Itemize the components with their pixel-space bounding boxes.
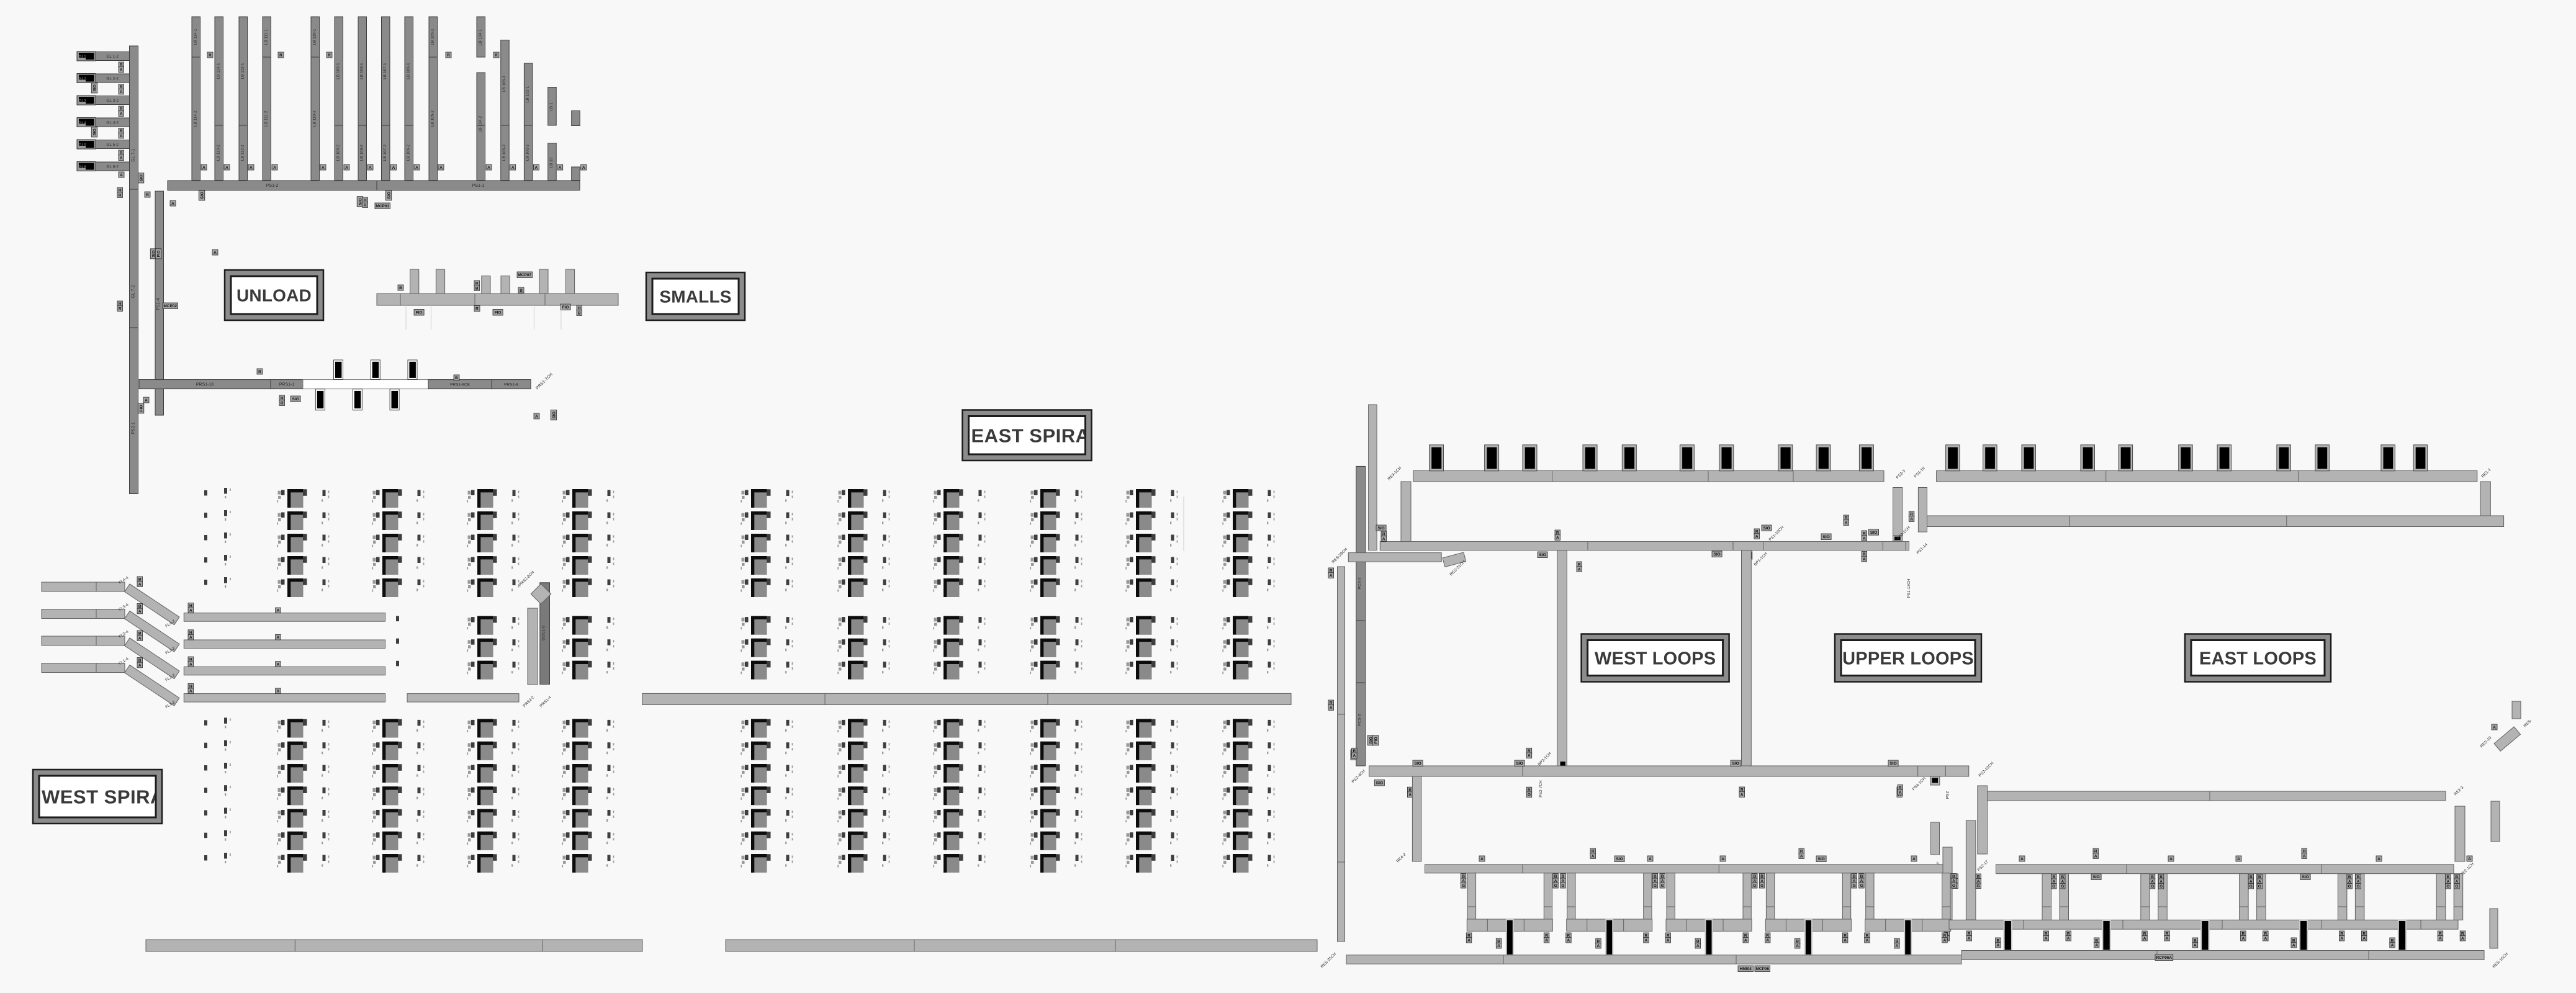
svg-text:SIO: SIO bbox=[1817, 857, 1824, 861]
svg-text:R: R bbox=[447, 53, 450, 58]
svg-text:A: A bbox=[138, 636, 142, 640]
svg-text:SIO: SIO bbox=[1889, 762, 1896, 766]
svg-text:A: A bbox=[2292, 943, 2295, 948]
svg-text:FIO: FIO bbox=[416, 311, 423, 315]
svg-text:A: A bbox=[1899, 791, 1902, 795]
svg-text:A: A bbox=[120, 156, 123, 160]
svg-text:GL6: GL6 bbox=[79, 165, 87, 169]
svg-text:PRS1-1: PRS1-1 bbox=[279, 383, 295, 387]
svg-text:FIO: FIO bbox=[562, 305, 569, 310]
svg-text:GL 3-2: GL 3-2 bbox=[106, 99, 119, 103]
svg-text:A: A bbox=[250, 166, 253, 170]
svg-text:A: A bbox=[1863, 536, 1866, 541]
svg-text:SIO: SIO bbox=[1822, 535, 1829, 539]
svg-text:SIO: SIO bbox=[139, 174, 143, 181]
svg-text:A: A bbox=[1968, 937, 1971, 941]
svg-text:G: G bbox=[2446, 884, 2449, 889]
svg-text:R: R bbox=[119, 307, 122, 311]
svg-text:LB 108-1: LB 108-1 bbox=[359, 63, 364, 79]
svg-text:G: G bbox=[1860, 884, 1863, 888]
svg-text:A: A bbox=[189, 636, 192, 640]
svg-text:GL2: GL2 bbox=[79, 77, 87, 81]
svg-text:LB 103-1: LB 103-1 bbox=[502, 75, 507, 92]
svg-text:SIO: SIO bbox=[1539, 553, 1546, 557]
svg-text:B: B bbox=[520, 289, 523, 293]
svg-text:A: A bbox=[2237, 857, 2240, 861]
svg-text:R: R bbox=[328, 53, 331, 58]
svg-text:R: R bbox=[258, 370, 261, 374]
svg-text:PRS1-9CB: PRS1-9CB bbox=[450, 382, 470, 387]
svg-text:A: A bbox=[1528, 754, 1531, 758]
svg-text:SIO: SIO bbox=[1870, 531, 1877, 535]
svg-text:A: A bbox=[214, 251, 217, 255]
svg-text:LB 1: LB 1 bbox=[549, 102, 554, 111]
svg-text:LB 104-1: LB 104-1 bbox=[478, 29, 482, 45]
svg-text:MCP02: MCP02 bbox=[163, 304, 177, 308]
svg-text:LB 113-2: LB 113-2 bbox=[216, 145, 220, 161]
svg-text:LB 111-1: LB 111-1 bbox=[264, 29, 268, 45]
svg-text:G: G bbox=[1661, 884, 1664, 888]
svg-text:G: G bbox=[2348, 884, 2351, 889]
svg-text:FIO: FIO bbox=[495, 311, 502, 315]
svg-text:GL 7-1: GL 7-1 bbox=[132, 148, 136, 161]
svg-text:A: A bbox=[1567, 938, 1570, 943]
svg-text:LB 109-1: LB 109-1 bbox=[336, 63, 340, 79]
svg-text:R: R bbox=[281, 401, 284, 405]
svg-text:R: R bbox=[279, 53, 282, 58]
svg-text:G: G bbox=[2455, 884, 2458, 889]
svg-text:A: A bbox=[2067, 937, 2070, 941]
svg-text:SIO: SIO bbox=[1516, 762, 1523, 766]
svg-text:SIO: SIO bbox=[552, 411, 556, 418]
svg-text:LB 109-2: LB 109-2 bbox=[336, 145, 340, 161]
svg-text:SIO: SIO bbox=[92, 128, 97, 135]
svg-text:LB 113-1: LB 113-1 bbox=[216, 63, 220, 79]
svg-text:A: A bbox=[2468, 857, 2471, 861]
svg-text:SIO: SIO bbox=[2302, 875, 2308, 879]
svg-text:A: A bbox=[2094, 854, 2097, 858]
svg-text:PS2: PS2 bbox=[1946, 791, 1950, 799]
svg-text:A: A bbox=[273, 166, 276, 170]
svg-text:GL5: GL5 bbox=[79, 143, 87, 148]
svg-text:A: A bbox=[1910, 517, 1913, 521]
svg-text:A: A bbox=[1497, 944, 1500, 948]
svg-text:A: A bbox=[1943, 938, 1947, 943]
svg-text:A: A bbox=[1721, 857, 1724, 861]
svg-text:A: A bbox=[2194, 943, 2197, 948]
svg-text:A: A bbox=[1741, 793, 1744, 797]
svg-text:A: A bbox=[1796, 944, 1799, 948]
svg-text:A: A bbox=[171, 202, 174, 206]
svg-text:A: A bbox=[120, 134, 123, 138]
svg-text:GL 6-2: GL 6-2 bbox=[106, 164, 119, 169]
svg-text:GL4: GL4 bbox=[79, 121, 87, 125]
svg-text:R: R bbox=[364, 203, 367, 207]
svg-text:A: A bbox=[2166, 937, 2169, 941]
svg-text:G: G bbox=[2249, 884, 2253, 889]
svg-text:A: A bbox=[138, 609, 142, 614]
svg-text:GL 5-2: GL 5-2 bbox=[106, 143, 119, 147]
svg-text:A: A bbox=[415, 166, 418, 170]
svg-text:LB 111-2: LB 111-2 bbox=[264, 110, 268, 127]
svg-text:G: G bbox=[2151, 884, 2154, 889]
svg-text:PS1-4: PS1-4 bbox=[156, 298, 161, 310]
svg-text:O: O bbox=[1528, 793, 1531, 798]
svg-text:LB 106-1: LB 106-1 bbox=[406, 63, 410, 79]
svg-text:A: A bbox=[1996, 943, 1999, 948]
svg-text:A: A bbox=[1330, 573, 1333, 578]
svg-text:A: A bbox=[277, 609, 280, 613]
svg-text:A: A bbox=[392, 166, 395, 170]
svg-text:A: A bbox=[582, 166, 585, 170]
svg-text:LB 107-2: LB 107-2 bbox=[383, 145, 387, 161]
svg-text:G: G bbox=[1977, 884, 1980, 889]
svg-text:G: G bbox=[1654, 884, 1657, 888]
svg-text:A: A bbox=[1844, 938, 1847, 943]
svg-text:A: A bbox=[189, 662, 192, 667]
svg-text:A: A bbox=[2264, 937, 2267, 941]
svg-text:G: G bbox=[2159, 884, 2163, 889]
svg-text:G: G bbox=[1554, 884, 1557, 888]
svg-text:B: B bbox=[399, 286, 402, 290]
svg-text:HMI04: HMI04 bbox=[1740, 967, 1752, 971]
svg-text:A: A bbox=[535, 415, 538, 419]
svg-text:GL 7-2: GL 7-2 bbox=[132, 285, 136, 298]
svg-text:A: A bbox=[138, 663, 142, 668]
svg-text:A: A bbox=[1645, 938, 1648, 943]
svg-text:SIO: SIO bbox=[358, 198, 363, 205]
svg-text:SMALLS: SMALLS bbox=[659, 287, 731, 307]
svg-text:MCP01: MCP01 bbox=[376, 204, 389, 209]
svg-text:A: A bbox=[2303, 854, 2306, 858]
svg-text:A: A bbox=[1578, 567, 1581, 572]
svg-text:A: A bbox=[1408, 793, 1412, 798]
svg-text:SIO: SIO bbox=[92, 84, 97, 91]
svg-text:A: A bbox=[2362, 937, 2366, 941]
svg-text:A: A bbox=[2340, 937, 2343, 941]
svg-text:G: G bbox=[2357, 884, 2360, 889]
svg-text:A: A bbox=[1866, 938, 1869, 943]
svg-text:SIO: SIO bbox=[1377, 526, 1384, 531]
svg-text:A: A bbox=[225, 166, 228, 170]
svg-text:A: A bbox=[1353, 754, 1356, 758]
svg-text:LB 110-1: LB 110-1 bbox=[312, 29, 317, 45]
svg-text:A: A bbox=[535, 166, 538, 170]
svg-text:A: A bbox=[277, 662, 280, 667]
svg-text:LB 112-1: LB 112-1 bbox=[240, 63, 245, 79]
svg-text:A: A bbox=[559, 166, 562, 170]
svg-text:SIO: SIO bbox=[2092, 875, 2099, 879]
svg-text:A: A bbox=[369, 166, 372, 170]
svg-text:A: A bbox=[2020, 857, 2024, 861]
svg-text:A: A bbox=[1667, 938, 1670, 943]
svg-text:G: G bbox=[1462, 884, 1465, 888]
svg-text:DOC1-5: DOC1-5 bbox=[542, 626, 546, 640]
svg-text:A: A bbox=[511, 166, 515, 170]
svg-text:MCP06: MCP06 bbox=[1755, 967, 1769, 971]
svg-text:A: A bbox=[1597, 944, 1600, 948]
svg-text:LB 110-2: LB 110-2 bbox=[312, 110, 317, 127]
svg-text:R: R bbox=[146, 193, 149, 197]
svg-text:SIO: SIO bbox=[1376, 781, 1383, 786]
svg-text:A: A bbox=[1592, 854, 1595, 858]
svg-text:LB 107-1: LB 107-1 bbox=[383, 63, 387, 79]
svg-text:GL 1-2: GL 1-2 bbox=[106, 55, 119, 59]
svg-text:PS1-2: PS1-2 bbox=[266, 184, 279, 188]
svg-text:LB 112-2: LB 112-2 bbox=[240, 145, 245, 161]
svg-text:A: A bbox=[2493, 726, 2496, 730]
svg-text:R: R bbox=[495, 53, 498, 58]
svg-text:A: A bbox=[1845, 521, 1848, 525]
svg-text:A: A bbox=[120, 90, 123, 94]
svg-text:LB 103-2: LB 103-2 bbox=[502, 144, 507, 161]
svg-text:A: A bbox=[439, 166, 443, 170]
svg-text:B: B bbox=[475, 286, 479, 290]
svg-text:A: A bbox=[1382, 537, 1385, 541]
svg-text:G: G bbox=[1853, 884, 1856, 888]
svg-text:MCP07: MCP07 bbox=[518, 273, 531, 277]
svg-text:LB 10: LB 10 bbox=[549, 157, 554, 168]
svg-text:UPPER LOOPS: UPPER LOOPS bbox=[1842, 649, 1974, 668]
svg-text:EAST SPIRAL: EAST SPIRAL bbox=[971, 425, 1102, 446]
svg-text:A: A bbox=[1480, 857, 1484, 861]
svg-text:FIO: FIO bbox=[1374, 737, 1378, 744]
svg-text:G: G bbox=[1753, 884, 1756, 888]
svg-text:LB 104-2: LB 104-2 bbox=[478, 115, 482, 132]
svg-text:PS1-13CH: PS1-13CH bbox=[1907, 578, 1911, 598]
svg-text:A: A bbox=[277, 690, 280, 694]
svg-text:SIO: SIO bbox=[387, 192, 391, 199]
svg-text:GL3: GL3 bbox=[79, 99, 87, 104]
svg-text:A: A bbox=[1556, 536, 1559, 540]
svg-text:PCS-2: PCS-2 bbox=[1358, 577, 1362, 590]
svg-text:A: A bbox=[120, 173, 123, 177]
svg-text:PRS1-18: PRS1-18 bbox=[196, 383, 214, 387]
svg-text:A: A bbox=[1467, 938, 1470, 943]
svg-text:A: A bbox=[1912, 857, 1916, 861]
svg-text:FIO: FIO bbox=[156, 250, 161, 257]
svg-text:B: B bbox=[455, 376, 458, 380]
svg-text:A: A bbox=[322, 166, 325, 170]
svg-text:A: A bbox=[1766, 938, 1769, 943]
svg-text:LB 114-2: LB 114-2 bbox=[193, 110, 197, 127]
svg-text:A: A bbox=[1755, 534, 1759, 539]
svg-text:A: A bbox=[2169, 857, 2173, 861]
svg-text:A: A bbox=[1545, 938, 1548, 943]
svg-text:A: A bbox=[1744, 938, 1747, 943]
svg-text:A: A bbox=[1800, 854, 1803, 858]
svg-text:A: A bbox=[189, 690, 192, 694]
svg-text:SIO: SIO bbox=[1616, 857, 1623, 861]
svg-text:A: A bbox=[345, 166, 348, 170]
svg-text:A: A bbox=[120, 112, 123, 116]
svg-text:SIO: SIO bbox=[292, 397, 299, 402]
svg-text:G: G bbox=[2061, 884, 2064, 889]
svg-text:SIO: SIO bbox=[200, 192, 204, 199]
svg-text:R: R bbox=[209, 53, 212, 58]
svg-text:SIO: SIO bbox=[1732, 762, 1739, 766]
svg-text:PS1-1: PS1-1 bbox=[472, 184, 485, 188]
svg-text:PS2-7CH: PS2-7CH bbox=[1539, 780, 1543, 798]
svg-text:SIO: SIO bbox=[1414, 762, 1421, 766]
svg-text:LB 102-2: LB 102-2 bbox=[526, 144, 530, 161]
svg-text:G: G bbox=[1952, 884, 1955, 888]
svg-text:SIO: SIO bbox=[1713, 552, 1720, 557]
svg-text:UNLOAD: UNLOAD bbox=[236, 286, 312, 305]
svg-text:GL 2-2: GL 2-2 bbox=[106, 76, 119, 81]
svg-text:A: A bbox=[1896, 944, 1899, 948]
svg-text:LB 108-2: LB 108-2 bbox=[359, 145, 364, 161]
svg-text:A: A bbox=[189, 609, 192, 613]
svg-text:A: A bbox=[2439, 937, 2442, 941]
svg-text:R: R bbox=[119, 193, 122, 197]
svg-text:A: A bbox=[2377, 857, 2380, 861]
svg-text:B: B bbox=[578, 311, 581, 315]
svg-text:SIO: SIO bbox=[1763, 526, 1770, 531]
svg-text:RCP06A: RCP06A bbox=[2156, 956, 2172, 960]
svg-text:FIO: FIO bbox=[139, 405, 143, 411]
svg-text:GL1: GL1 bbox=[79, 55, 87, 60]
svg-text:PRS1-8: PRS1-8 bbox=[504, 382, 518, 387]
svg-text:A: A bbox=[120, 68, 123, 72]
svg-text:A: A bbox=[2045, 937, 2048, 941]
svg-text:A: A bbox=[487, 166, 490, 170]
svg-text:LB 114-1: LB 114-1 bbox=[193, 29, 197, 45]
svg-text:EAST LOOPS: EAST LOOPS bbox=[2199, 649, 2317, 668]
svg-text:LB 105-2: LB 105-2 bbox=[430, 110, 435, 127]
svg-text:G: G bbox=[2258, 884, 2261, 889]
svg-text:PCS-3: PCS-3 bbox=[1358, 714, 1362, 726]
svg-text:LB 106-2: LB 106-2 bbox=[406, 145, 410, 161]
svg-text:G: G bbox=[1561, 884, 1564, 888]
svg-text:A: A bbox=[2391, 943, 2394, 948]
svg-text:LB 105-1: LB 105-1 bbox=[430, 29, 435, 45]
svg-text:A: A bbox=[2095, 943, 2098, 948]
svg-text:A: A bbox=[145, 398, 148, 403]
svg-text:LB 102-1: LB 102-1 bbox=[526, 86, 530, 102]
svg-text:A: A bbox=[2241, 937, 2245, 941]
svg-text:A: A bbox=[1330, 706, 1333, 710]
svg-text:PS2-1: PS2-1 bbox=[132, 422, 136, 434]
svg-text:G: G bbox=[1760, 884, 1763, 888]
svg-text:A: A bbox=[2143, 937, 2146, 941]
svg-text:A: A bbox=[277, 636, 280, 640]
svg-text:A: A bbox=[1863, 557, 1866, 562]
svg-text:A: A bbox=[2461, 937, 2464, 941]
svg-text:R: R bbox=[475, 307, 479, 311]
svg-text:A: A bbox=[138, 582, 142, 586]
svg-text:A: A bbox=[202, 166, 205, 170]
svg-text:A: A bbox=[1649, 857, 1652, 861]
svg-text:G: G bbox=[2052, 884, 2055, 889]
svg-text:WEST LOOPS: WEST LOOPS bbox=[1595, 649, 1716, 668]
svg-text:GL 4-2: GL 4-2 bbox=[106, 120, 119, 125]
svg-text:A: A bbox=[1696, 944, 1700, 948]
